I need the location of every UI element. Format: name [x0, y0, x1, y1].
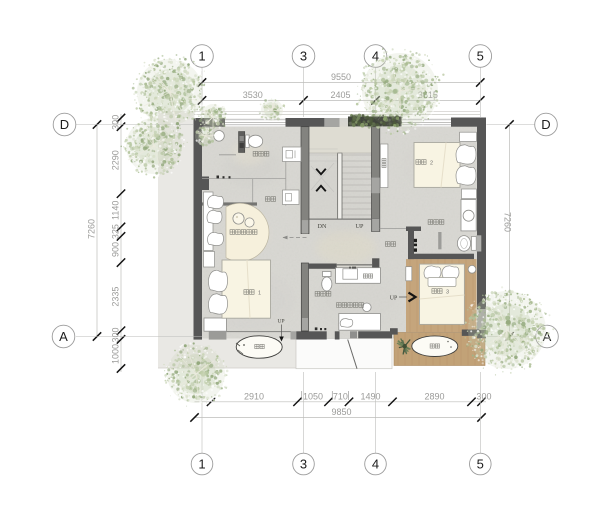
svg-text:300: 300 — [110, 115, 120, 130]
svg-text:3: 3 — [300, 457, 307, 472]
svg-text:1490: 1490 — [360, 391, 380, 401]
svg-text:900: 900 — [110, 242, 120, 257]
svg-text:9550: 9550 — [331, 72, 351, 82]
svg-text:UP: UP — [390, 296, 397, 302]
svg-text:2335: 2335 — [110, 287, 120, 307]
svg-text:710: 710 — [333, 391, 348, 401]
svg-text:D: D — [60, 117, 69, 132]
svg-text:2910: 2910 — [244, 391, 264, 401]
svg-text:300: 300 — [110, 327, 120, 342]
svg-text:5: 5 — [477, 457, 484, 472]
svg-text:1: 1 — [198, 457, 205, 472]
svg-text:DN: DN — [318, 223, 327, 230]
svg-text:7260: 7260 — [86, 219, 96, 239]
svg-text:A: A — [59, 329, 68, 344]
svg-text:2405: 2405 — [330, 90, 350, 100]
svg-text:3: 3 — [446, 290, 449, 296]
svg-text:D: D — [541, 117, 550, 132]
svg-text:3: 3 — [300, 49, 307, 64]
svg-text:1000: 1000 — [110, 344, 120, 364]
svg-text:UP: UP — [356, 223, 364, 230]
svg-text:1050: 1050 — [303, 391, 323, 401]
svg-text:1: 1 — [258, 291, 261, 297]
svg-text:9850: 9850 — [331, 407, 351, 417]
svg-text:1140: 1140 — [110, 201, 120, 220]
svg-text:4: 4 — [372, 457, 379, 472]
svg-text:2290: 2290 — [110, 150, 120, 170]
svg-text:1: 1 — [198, 49, 205, 64]
svg-text:7260: 7260 — [503, 212, 513, 232]
svg-text:5: 5 — [477, 49, 484, 64]
svg-text:UP: UP — [277, 319, 284, 325]
svg-text:3530: 3530 — [243, 90, 263, 100]
svg-text:300: 300 — [476, 391, 491, 401]
svg-text:2: 2 — [430, 161, 433, 167]
svg-text:325: 325 — [110, 224, 120, 239]
svg-text:2890: 2890 — [424, 391, 444, 401]
